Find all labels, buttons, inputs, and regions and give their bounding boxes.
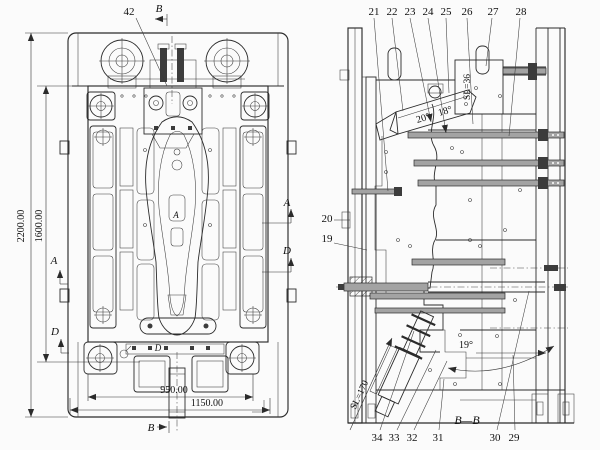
marker-b-bottom-label: B <box>148 422 155 434</box>
callouts-left: 20 19 <box>322 213 368 250</box>
right-clamp-plates <box>348 28 574 423</box>
callout-33-label: 33 <box>389 432 401 444</box>
ejector-box-right <box>192 356 228 392</box>
callout-29-label: 29 <box>509 432 521 444</box>
plan-view: 2200.00 1600.00 950.00 1150.00 42 B <box>16 3 296 434</box>
callout-20-label: 20 <box>322 213 334 225</box>
section-marker-a-left: A <box>50 255 68 284</box>
marker-d-right-label: D <box>282 245 291 257</box>
base-plate <box>68 33 288 417</box>
dim-inner-height-label: 1600.00 <box>34 210 45 243</box>
callout-30-label: 30 <box>490 432 502 444</box>
guide-bushing-bottom-right <box>226 342 259 374</box>
callout-31-label: 31 <box>433 432 444 444</box>
side-panel-left <box>90 126 116 328</box>
marker-d-left-label: D <box>50 326 59 338</box>
section-marker-b-top: B <box>155 3 167 26</box>
parting-profile <box>420 104 443 352</box>
callout-21-label: 21 <box>369 6 380 18</box>
guide-bushing-bottom-left <box>84 342 117 374</box>
side-panel-right <box>240 126 266 328</box>
callout-28-label: 28 <box>516 6 528 18</box>
marker-a-left-label: A <box>50 255 58 267</box>
body-structure <box>375 95 565 401</box>
callout-23-label: 23 <box>405 6 417 18</box>
left-clamp-plates <box>340 28 376 423</box>
lifting-ring-right <box>204 38 250 88</box>
section-marker-b-bottom: B <box>148 421 169 434</box>
guide-bushing-top-left <box>87 92 115 120</box>
dim-inner-width-label: 950.00 <box>160 385 188 396</box>
section-view: 20° 18° SL=36 <box>322 6 575 444</box>
section-title: B—B <box>454 413 480 427</box>
callout-26-label: 26 <box>462 6 474 18</box>
drawing-canvas: 2200.00 1600.00 950.00 1150.00 42 B <box>0 0 600 450</box>
callout-24-label: 24 <box>423 6 435 18</box>
dimension-inner-height: 1600.00 <box>34 86 140 362</box>
technical-drawing: 2200.00 1600.00 950.00 1150.00 42 B <box>0 0 600 450</box>
lug-left <box>388 48 401 80</box>
dim-outer-width-label: 1150.00 <box>191 398 223 409</box>
part-cavity <box>140 117 216 335</box>
upper-assembly: 20° 18° SL=36 <box>376 46 546 140</box>
target-marks <box>94 128 262 324</box>
sprue-bolt-left <box>160 48 167 82</box>
sprue-bolt-right <box>177 48 184 82</box>
callout-32-label: 32 <box>407 432 418 444</box>
marker-b-top-label: B <box>156 3 163 15</box>
dim-outer-height-label: 2200.00 <box>16 210 27 243</box>
callout-27-label: 27 <box>488 6 500 18</box>
angle-18-label: 18° <box>437 104 454 119</box>
sprue-unit <box>150 36 196 104</box>
guide-bushing-top-right <box>241 92 269 120</box>
callout-22-label: 22 <box>387 6 398 18</box>
dimension-outer-width: 1150.00 <box>70 398 270 414</box>
callout-34-label: 34 <box>372 432 384 444</box>
marker-d-inner-label: D <box>154 343 162 353</box>
callout-25-label: 25 <box>441 6 453 18</box>
lifting-ring-left <box>99 38 145 88</box>
callout-42-label: 42 <box>124 6 135 18</box>
core-pull <box>336 259 568 328</box>
inclined-cylinder: SL=170 19° <box>349 306 554 430</box>
section-marker-d-left: D <box>50 326 69 353</box>
base-plate-outline <box>60 33 296 417</box>
marker-a-inner-label: A <box>172 210 179 220</box>
left-pin <box>352 189 398 194</box>
angle-19-label: 19° <box>459 340 473 351</box>
foot-left <box>532 394 548 423</box>
marker-a-right-label: A <box>283 197 291 209</box>
callout-19-label: 19 <box>322 233 334 245</box>
